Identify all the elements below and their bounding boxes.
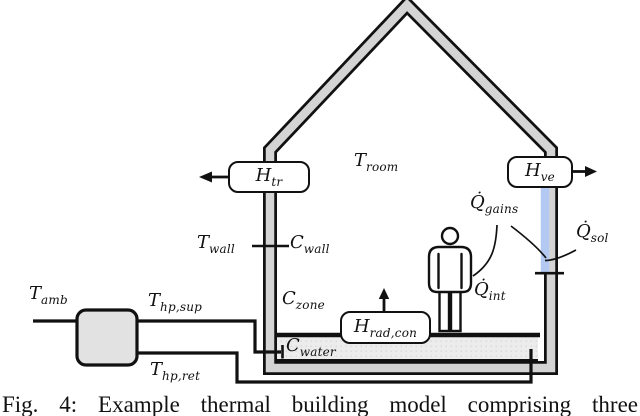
curve-gains-to-person — [473, 225, 497, 276]
label-c-zone: Czone — [282, 290, 325, 312]
label-t-amb: Tamb — [29, 285, 68, 307]
node-box-h-tr: Htr — [228, 161, 310, 193]
label-q-sol: Q̇sol — [576, 223, 609, 245]
arrow-up-icon — [379, 288, 389, 311]
supply-pipe — [137, 321, 281, 352]
window-pane — [541, 188, 550, 272]
node-box-h-rad-con: Hrad,con — [340, 311, 431, 344]
label-t-room: Troom — [354, 152, 398, 174]
node-box-h-ve: Hve — [507, 156, 573, 188]
label-c-water: Cwater — [286, 337, 336, 359]
arrow-right-icon — [573, 166, 597, 177]
pointer-curves — [473, 225, 576, 276]
h-rad-con-label: Hrad,con — [354, 316, 417, 340]
person-head — [442, 228, 458, 244]
person-figure — [429, 228, 471, 331]
label-q-gains: Q̇gains — [470, 194, 518, 216]
arrow-left-icon — [199, 172, 228, 183]
label-t-hp-sup: Thp,sup — [148, 292, 202, 314]
h-ve-label: Hve — [525, 160, 555, 184]
label-t-wall: Twall — [197, 234, 235, 256]
h-tr-label: Htr — [256, 165, 283, 189]
label-q-int: Q̇int — [474, 281, 506, 303]
label-t-hp-ret: Thp,ret — [150, 361, 200, 383]
heat-pump-unit — [77, 310, 137, 365]
label-c-wall: Cwall — [290, 234, 330, 256]
figure-caption: Fig. 4: Example thermal building model c… — [0, 392, 640, 416]
figure-thermal-building-model: Htr Hve Hrad,con Troom Q̇gains Q̇sol Q̇i… — [0, 0, 640, 416]
person-torso — [429, 247, 471, 292]
